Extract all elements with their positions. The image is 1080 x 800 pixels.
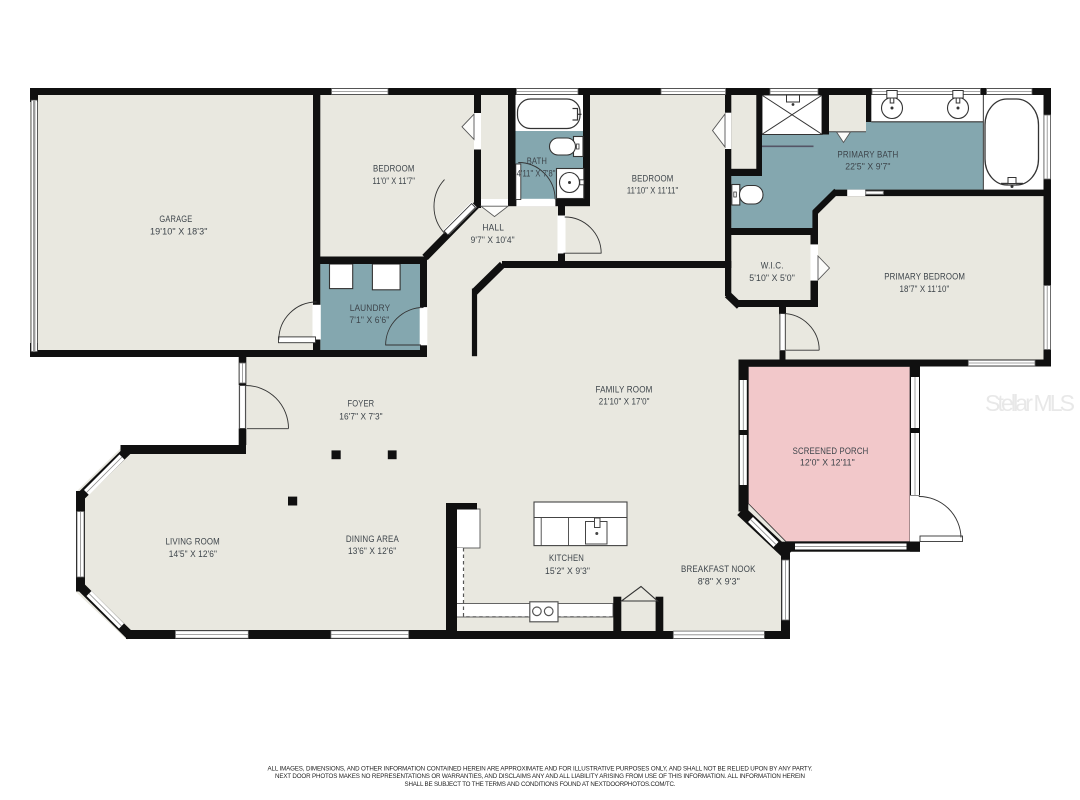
svg-text:NEXT DOOR PHOTOS MAKES NO REPR: NEXT DOOR PHOTOS MAKES NO REPRESENTATION… bbox=[275, 773, 805, 780]
svg-text:12'0" X 12'11": 12'0" X 12'11" bbox=[800, 458, 855, 468]
svg-text:BEDROOM: BEDROOM bbox=[632, 174, 674, 185]
svg-text:18'7" X 11'10": 18'7" X 11'10" bbox=[900, 284, 950, 294]
svg-text:BEDROOM: BEDROOM bbox=[373, 163, 415, 174]
svg-text:14'5" X 12'6": 14'5" X 12'6" bbox=[169, 549, 217, 559]
svg-text:ALL IMAGES, DIMENSIONS, AND OT: ALL IMAGES, DIMENSIONS, AND OTHER INFORM… bbox=[268, 766, 813, 773]
svg-text:SHALL BE SUBJECT TO THE TERMS: SHALL BE SUBJECT TO THE TERMS AND CONDIT… bbox=[405, 781, 676, 788]
svg-text:11'0" X 11'7": 11'0" X 11'7" bbox=[373, 176, 416, 186]
svg-text:PRIMARY BATH: PRIMARY BATH bbox=[837, 150, 898, 161]
svg-text:16'7" X 7'3": 16'7" X 7'3" bbox=[339, 412, 382, 422]
svg-text:5'10" X 5'0": 5'10" X 5'0" bbox=[749, 273, 795, 283]
svg-text:SCREENED PORCH: SCREENED PORCH bbox=[793, 446, 869, 457]
svg-text:BATH: BATH bbox=[527, 156, 547, 167]
svg-text:GARAGE: GARAGE bbox=[159, 214, 192, 225]
svg-text:LIVING ROOM: LIVING ROOM bbox=[166, 537, 220, 548]
svg-text:KITCHEN: KITCHEN bbox=[549, 553, 584, 564]
svg-text:9'7" X 10'4": 9'7" X 10'4" bbox=[471, 235, 515, 245]
svg-text:HALL: HALL bbox=[482, 223, 504, 234]
svg-text:7'1" X 6'6": 7'1" X 6'6" bbox=[349, 315, 389, 325]
svg-text:Stellar MLS: Stellar MLS bbox=[985, 390, 1075, 416]
svg-text:13'6" X 12'6": 13'6" X 12'6" bbox=[348, 546, 396, 556]
svg-text:LAUNDRY: LAUNDRY bbox=[350, 303, 391, 314]
svg-text:BREAKFAST NOOK: BREAKFAST NOOK bbox=[681, 564, 756, 575]
svg-text:11'10" X 11'11": 11'10" X 11'11" bbox=[627, 186, 678, 196]
svg-text:21'10" X 17'0": 21'10" X 17'0" bbox=[599, 397, 650, 407]
svg-text:22'5" X 9'7": 22'5" X 9'7" bbox=[845, 161, 890, 171]
svg-text:19'10" X 18'3": 19'10" X 18'3" bbox=[150, 226, 208, 236]
svg-text:8'8" X 9'3": 8'8" X 9'3" bbox=[698, 576, 740, 586]
svg-text:FOYER: FOYER bbox=[348, 399, 375, 410]
svg-text:15'2" X 9'3": 15'2" X 9'3" bbox=[545, 566, 590, 576]
svg-text:DINING AREA: DINING AREA bbox=[346, 534, 399, 545]
svg-text:4'11" X 7'8": 4'11" X 7'8" bbox=[517, 168, 556, 178]
svg-text:PRIMARY BEDROOM: PRIMARY BEDROOM bbox=[884, 272, 965, 283]
svg-text:W.I.C.: W.I.C. bbox=[761, 260, 784, 271]
svg-text:FAMILY ROOM: FAMILY ROOM bbox=[595, 384, 652, 395]
